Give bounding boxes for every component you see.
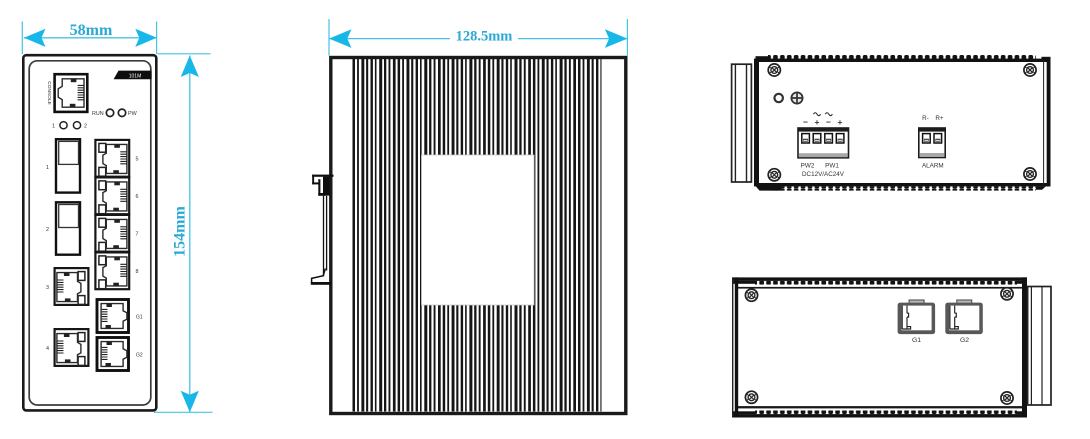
svg-text:3: 3: [46, 285, 49, 291]
svg-text:PW: PW: [128, 111, 138, 117]
svg-text:2: 2: [84, 124, 87, 130]
svg-text:154mm: 154mm: [172, 206, 189, 257]
svg-text:PW1: PW1: [825, 163, 839, 170]
svg-text:R-: R-: [922, 115, 929, 122]
svg-text:G1: G1: [912, 337, 921, 344]
svg-text:G1: G1: [136, 315, 143, 321]
svg-text:6: 6: [136, 194, 139, 200]
svg-text:128.5mm: 128.5mm: [456, 29, 513, 45]
svg-text:4: 4: [46, 346, 49, 352]
svg-text:2: 2: [46, 227, 49, 233]
svg-text:5: 5: [136, 156, 139, 162]
svg-text:DC12V/AC24V: DC12V/AC24V: [802, 171, 845, 178]
svg-text:+: +: [815, 117, 820, 127]
svg-text:+: +: [838, 117, 843, 127]
svg-text:G2: G2: [960, 337, 969, 344]
svg-text:CONSOLE: CONSOLE: [46, 81, 52, 104]
svg-text:−: −: [803, 117, 808, 127]
svg-text:58mm: 58mm: [70, 22, 113, 39]
svg-text:8: 8: [136, 269, 139, 275]
svg-text:ALARM: ALARM: [922, 163, 944, 170]
svg-text:R+: R+: [935, 115, 944, 122]
svg-text:1: 1: [52, 124, 55, 130]
svg-text:101M: 101M: [129, 73, 142, 79]
svg-text:G2: G2: [136, 353, 143, 359]
svg-text:7: 7: [136, 231, 139, 237]
svg-text:−: −: [826, 117, 831, 127]
svg-text:1: 1: [46, 165, 49, 171]
svg-text:PW2: PW2: [801, 163, 815, 170]
svg-text:RUN: RUN: [92, 111, 104, 117]
